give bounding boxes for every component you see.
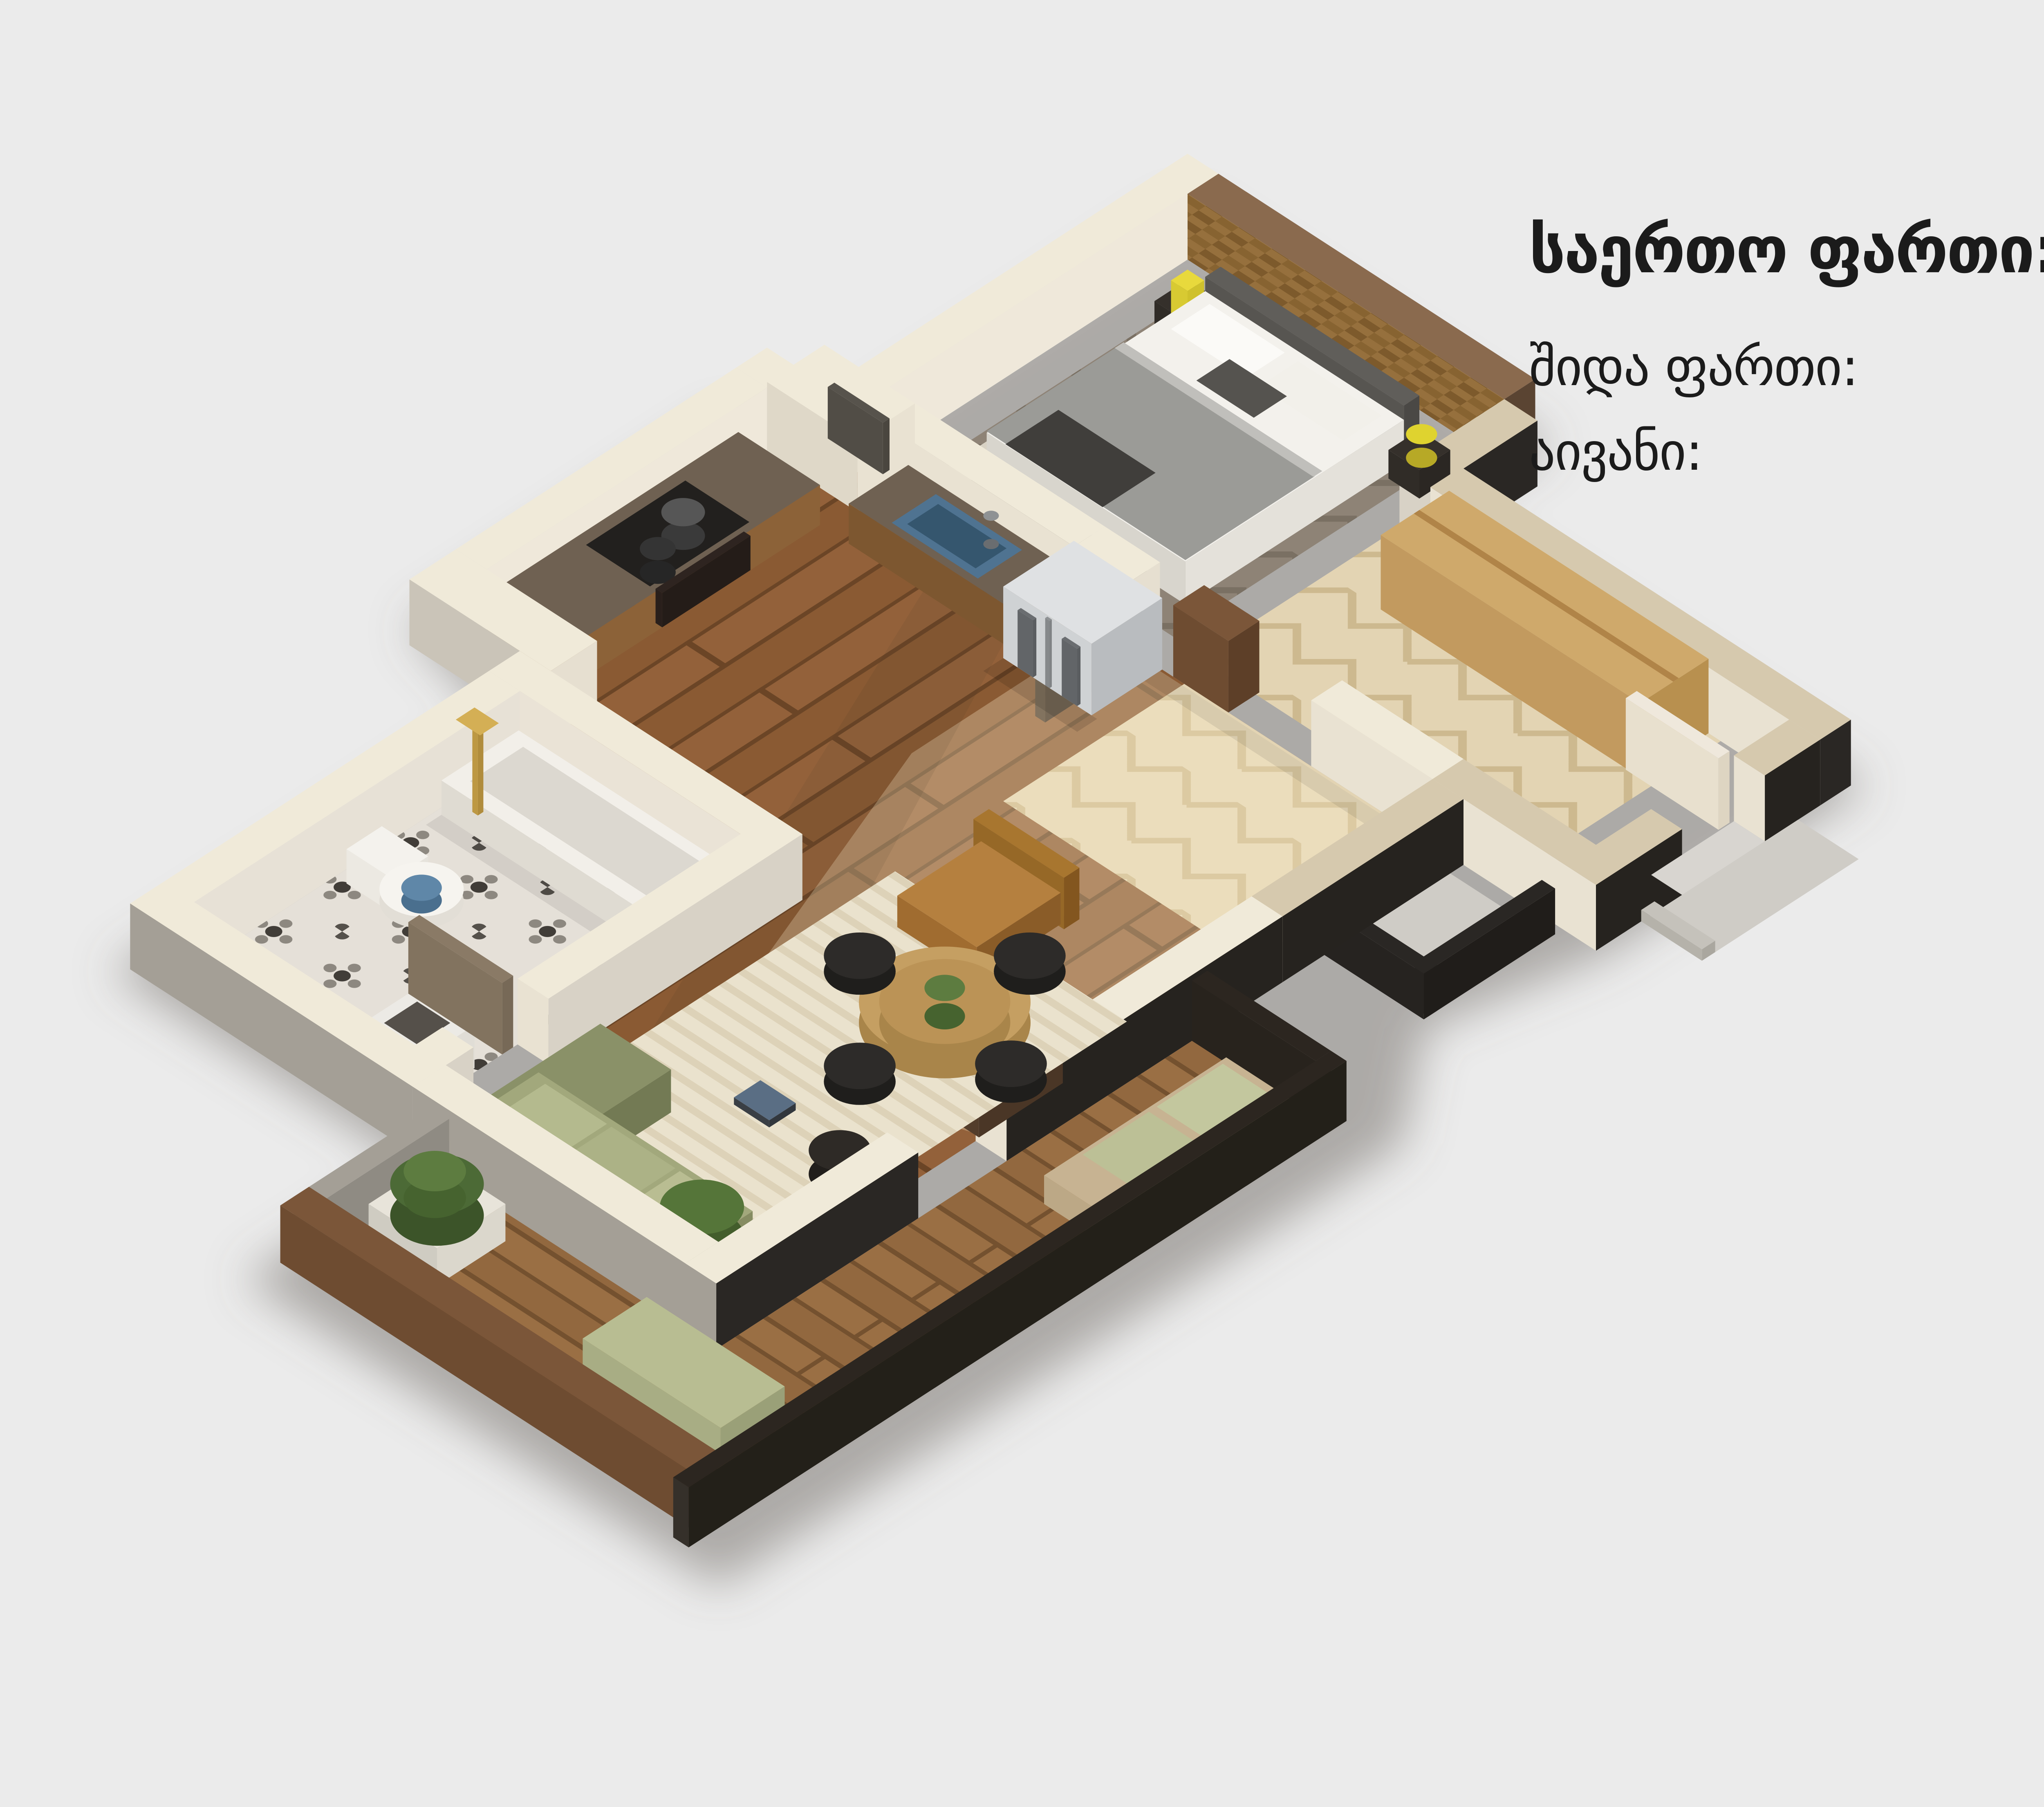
inner-area-label: შიდა ფართი: (1529, 337, 1858, 398)
balcony-area-row: აივანი: 4.1 მ2 (1529, 421, 2044, 482)
page: { "page": { "background_color": "#ebebeb… (0, 0, 2044, 1807)
total-area-label: საერთო ფართი: (1529, 213, 2044, 288)
total-area-row: საერთო ფართი: 45.7 მ2 (1529, 213, 2044, 288)
inner-area-row: შიდა ფართი: 41.6 მ2 (1529, 337, 2044, 398)
area-stats-panel: საერთო ფართი: 45.7 მ2 შიდა ფართი: 41.6 მ… (1529, 213, 2044, 506)
balcony-area-label: აივანი: (1529, 421, 1702, 482)
